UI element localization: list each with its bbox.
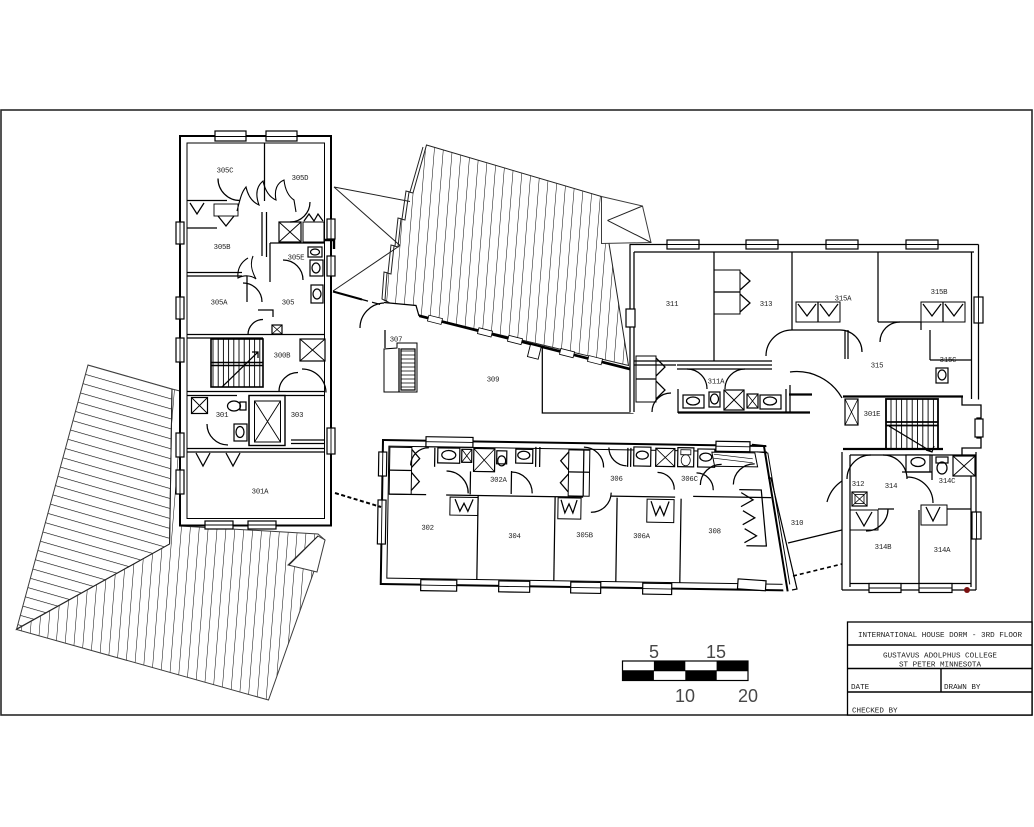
svg-text:302: 302 bbox=[421, 525, 434, 533]
svg-text:315: 315 bbox=[871, 363, 884, 371]
svg-text:311: 311 bbox=[666, 301, 679, 309]
svg-text:314B: 314B bbox=[875, 544, 893, 552]
svg-text:INTERNATIONAL HOUSE DORM - 3RD: INTERNATIONAL HOUSE DORM - 3RD FLOOR bbox=[858, 632, 1022, 640]
svg-text:300B: 300B bbox=[274, 353, 292, 361]
svg-text:308: 308 bbox=[708, 528, 721, 536]
svg-text:20: 20 bbox=[738, 686, 758, 706]
svg-text:309: 309 bbox=[487, 377, 500, 385]
svg-text:10: 10 bbox=[675, 686, 695, 706]
svg-text:305A: 305A bbox=[211, 300, 229, 308]
svg-text:310: 310 bbox=[791, 520, 804, 528]
svg-text:ST PETER MINNESOTA: ST PETER MINNESOTA bbox=[899, 662, 981, 670]
svg-text:313: 313 bbox=[760, 301, 773, 309]
svg-text:306C: 306C bbox=[681, 476, 699, 484]
svg-text:305B: 305B bbox=[214, 244, 232, 252]
svg-text:CHECKED BY: CHECKED BY bbox=[852, 708, 898, 716]
svg-text:304: 304 bbox=[508, 533, 521, 541]
svg-text:306: 306 bbox=[610, 476, 623, 484]
svg-text:DATE: DATE bbox=[851, 684, 870, 692]
svg-text:5: 5 bbox=[649, 642, 659, 662]
svg-text:DRAWN BY: DRAWN BY bbox=[944, 684, 981, 692]
svg-text:301: 301 bbox=[216, 412, 229, 420]
svg-text:301A: 301A bbox=[252, 489, 270, 497]
svg-text:301E: 301E bbox=[864, 411, 881, 419]
svg-text:312: 312 bbox=[852, 481, 865, 489]
svg-text:306A: 306A bbox=[633, 533, 651, 541]
svg-text:311A: 311A bbox=[708, 379, 726, 387]
svg-text:15: 15 bbox=[706, 642, 726, 662]
svg-text:315B: 315B bbox=[931, 289, 949, 297]
svg-text:314: 314 bbox=[885, 483, 898, 491]
svg-text:315C: 315C bbox=[940, 357, 958, 365]
svg-text:305: 305 bbox=[282, 300, 295, 308]
svg-text:305C: 305C bbox=[217, 168, 235, 176]
svg-text:305B: 305B bbox=[576, 532, 594, 540]
svg-text:303: 303 bbox=[291, 412, 304, 420]
svg-text:302A: 302A bbox=[490, 477, 508, 485]
svg-text:GUSTAVUS ADOLPHUS COLLEGE: GUSTAVUS ADOLPHUS COLLEGE bbox=[883, 653, 997, 661]
svg-text:314C: 314C bbox=[939, 478, 957, 486]
svg-text:314A: 314A bbox=[934, 547, 952, 555]
svg-text:305D: 305D bbox=[292, 175, 310, 183]
